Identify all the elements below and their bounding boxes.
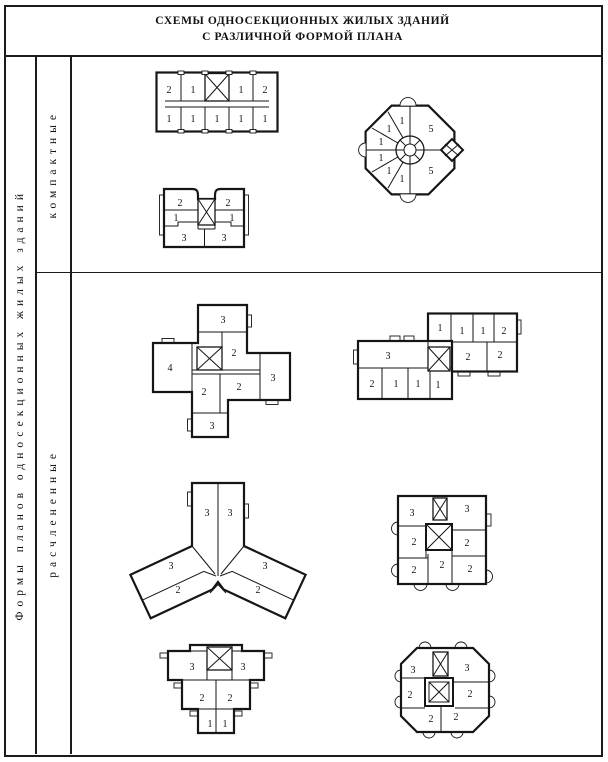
section-label-dissected: расчлененные bbox=[47, 449, 59, 578]
apartment-label: 3 bbox=[205, 508, 210, 519]
apartment-label: 1 bbox=[379, 153, 384, 164]
plan-three-wing-y: 3 3 3 2 3 2 bbox=[128, 480, 308, 622]
apartment-label: 1 bbox=[167, 114, 172, 125]
apartment-label: 1 bbox=[460, 326, 465, 337]
apartment-label: 2 bbox=[412, 565, 417, 576]
apartment-label: 1 bbox=[481, 326, 486, 337]
apartment-label: 1 bbox=[215, 114, 220, 125]
apartment-label: 2 bbox=[502, 326, 507, 337]
apartment-label: 3 bbox=[465, 663, 470, 674]
plan-stepped-pyramid: 3 3 2 2 1 1 bbox=[158, 637, 274, 749]
row-axis-cell: Формы планов односекционных жилых зданий bbox=[4, 56, 35, 754]
apartment-label: 2 bbox=[429, 714, 434, 725]
section-divider-line bbox=[35, 272, 601, 273]
apartment-label: 2 bbox=[370, 379, 375, 390]
apartment-label: 3 bbox=[182, 233, 187, 244]
apartment-label: 1 bbox=[191, 85, 196, 96]
apartment-label: 2 bbox=[454, 712, 459, 723]
title-line-1: СХЕМЫ ОДНОСЕКЦИОННЫХ ЖИЛЫХ ЗДАНИЙ bbox=[155, 14, 449, 30]
apartment-label: 3 bbox=[241, 662, 246, 673]
stair-icon bbox=[198, 199, 215, 225]
apartment-label: 5 bbox=[429, 124, 434, 135]
apartment-label: 2 bbox=[176, 585, 181, 596]
apartment-label: 2 bbox=[226, 198, 231, 209]
stair-icon bbox=[433, 652, 448, 676]
apartment-label: 2 bbox=[468, 689, 473, 700]
row-axis-label: Формы планов односекционных жилых зданий bbox=[14, 189, 26, 621]
plan-rectangular-corridor: 2 1 1 2 1 1 1 1 1 bbox=[155, 71, 279, 133]
apartment-label: 2 bbox=[232, 348, 237, 359]
apartment-label: 1 bbox=[387, 124, 392, 135]
apartment-label: 3 bbox=[228, 508, 233, 519]
apartment-label: 2 bbox=[202, 387, 207, 398]
plan-round: 1 1 1 1 1 1 5 5 bbox=[348, 98, 472, 202]
stair-icon bbox=[197, 347, 222, 370]
apartment-label: 2 bbox=[178, 198, 183, 209]
apartment-label: 1 bbox=[394, 379, 399, 390]
apartment-label: 1 bbox=[263, 114, 268, 125]
apartment-label: 1 bbox=[239, 114, 244, 125]
apartment-label: 2 bbox=[465, 538, 470, 549]
apartment-label: 1 bbox=[174, 213, 179, 224]
apartment-label: 3 bbox=[271, 373, 276, 384]
column2-divider-line bbox=[70, 55, 72, 754]
stair-icon bbox=[205, 74, 229, 102]
section-cell-compact: компактные bbox=[36, 56, 70, 272]
apartment-label: 1 bbox=[400, 116, 405, 127]
apartment-label: 3 bbox=[210, 421, 215, 432]
apartment-label: 1 bbox=[230, 213, 235, 224]
apartment-label: 2 bbox=[466, 352, 471, 363]
apartment-label: 1 bbox=[379, 137, 384, 148]
elevator-stair-icon bbox=[425, 678, 453, 706]
apartment-label: 2 bbox=[256, 585, 261, 596]
apartment-label: 3 bbox=[411, 665, 416, 676]
title-line-2: С РАЗЛИЧНОЙ ФОРМОЙ ПЛАНА bbox=[202, 30, 403, 46]
plan-small-pinwheel: 3 3 2 2 2 2 2 bbox=[390, 486, 495, 598]
stair-icon bbox=[433, 498, 447, 520]
stair-icon bbox=[428, 347, 450, 371]
apartment-label: 2 bbox=[498, 350, 503, 361]
section-label-compact: компактные bbox=[47, 110, 59, 219]
apartment-label: 2 bbox=[228, 693, 233, 704]
apartment-label: 1 bbox=[223, 719, 228, 730]
apartment-label: 2 bbox=[263, 85, 268, 96]
apartment-label: 1 bbox=[436, 380, 441, 391]
apartment-label: 2 bbox=[440, 560, 445, 571]
apartment-label: 2 bbox=[237, 382, 242, 393]
apartment-label: 1 bbox=[191, 114, 196, 125]
apartment-label: 3 bbox=[190, 662, 195, 673]
elevator-stair-icon bbox=[426, 524, 452, 550]
spiral-stair-core-icon bbox=[396, 136, 424, 164]
plan-large-pinwheel: 3 2 4 3 2 2 3 bbox=[148, 303, 293, 441]
apartment-label: 3 bbox=[410, 508, 415, 519]
apartment-label: 3 bbox=[169, 561, 174, 572]
apartment-label: 3 bbox=[221, 315, 226, 326]
apartment-label: 2 bbox=[408, 690, 413, 701]
plan-scalloped-square: 3 3 2 2 2 2 bbox=[393, 640, 498, 740]
stair-icon bbox=[207, 647, 232, 670]
apartment-label: 1 bbox=[438, 323, 443, 334]
apartment-label: 1 bbox=[239, 85, 244, 96]
scanned-diagram-page: СХЕМЫ ОДНОСЕКЦИОННЫХ ЖИЛЫХ ЗДАНИЙ С РАЗЛ… bbox=[0, 0, 608, 762]
apartment-label: 2 bbox=[468, 564, 473, 575]
apartment-label: 2 bbox=[167, 85, 172, 96]
apartment-label: 1 bbox=[208, 719, 213, 730]
apartment-label: 1 bbox=[387, 166, 392, 177]
apartment-label: 3 bbox=[386, 351, 391, 362]
apartment-label: 1 bbox=[416, 379, 421, 390]
plan-offset-slabs: 1 1 1 2 2 2 3 2 1 1 1 bbox=[352, 312, 522, 412]
apartment-label: 2 bbox=[412, 537, 417, 548]
apartment-label: 3 bbox=[263, 561, 268, 572]
apartment-label: 2 bbox=[200, 693, 205, 704]
apartment-label: 1 bbox=[400, 174, 405, 185]
apartment-label: 5 bbox=[429, 166, 434, 177]
plan-notched-rectangle: 2 1 3 2 1 3 bbox=[158, 183, 250, 251]
section-cell-dissected: расчлененные bbox=[36, 273, 70, 754]
apartment-label: 4 bbox=[168, 363, 173, 374]
table-title: СХЕМЫ ОДНОСЕКЦИОННЫХ ЖИЛЫХ ЗДАНИЙ С РАЗЛ… bbox=[4, 5, 601, 55]
title-divider-line bbox=[4, 55, 601, 57]
apartment-label: 3 bbox=[222, 233, 227, 244]
apartment-label: 3 bbox=[465, 504, 470, 515]
